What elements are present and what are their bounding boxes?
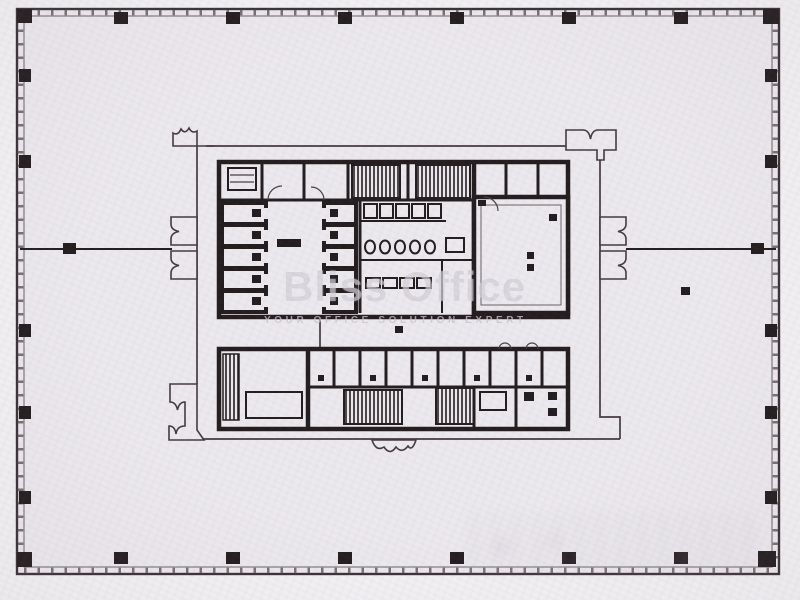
joint-right-upper (600, 217, 626, 245)
stair-hatch-lower-1 (344, 390, 402, 424)
core-lower-block (219, 343, 568, 429)
floor-dot-center (395, 326, 403, 333)
joint-left-lower (171, 251, 197, 279)
stair-hatch-upper-1 (352, 165, 400, 198)
floor-plan-drawing (0, 0, 800, 600)
lobby-room (474, 197, 568, 313)
corridor-marker (277, 239, 301, 247)
floor-dot-right (681, 287, 690, 295)
stair-hatch-upper-2 (416, 165, 470, 198)
meeting-table (246, 392, 302, 418)
elevator-bank-center (324, 203, 356, 312)
scanned-drawing (0, 0, 800, 600)
service-shaft-hatch (223, 354, 239, 420)
elevator-bank-left (222, 203, 266, 312)
joint-right-lower (600, 251, 626, 279)
joint-left-upper (171, 217, 197, 245)
floor-plan-photo: Bliss Office YOUR OFFICE SOLUTION EXPERT (0, 0, 800, 600)
stair-hatch-lower-2 (436, 388, 474, 424)
